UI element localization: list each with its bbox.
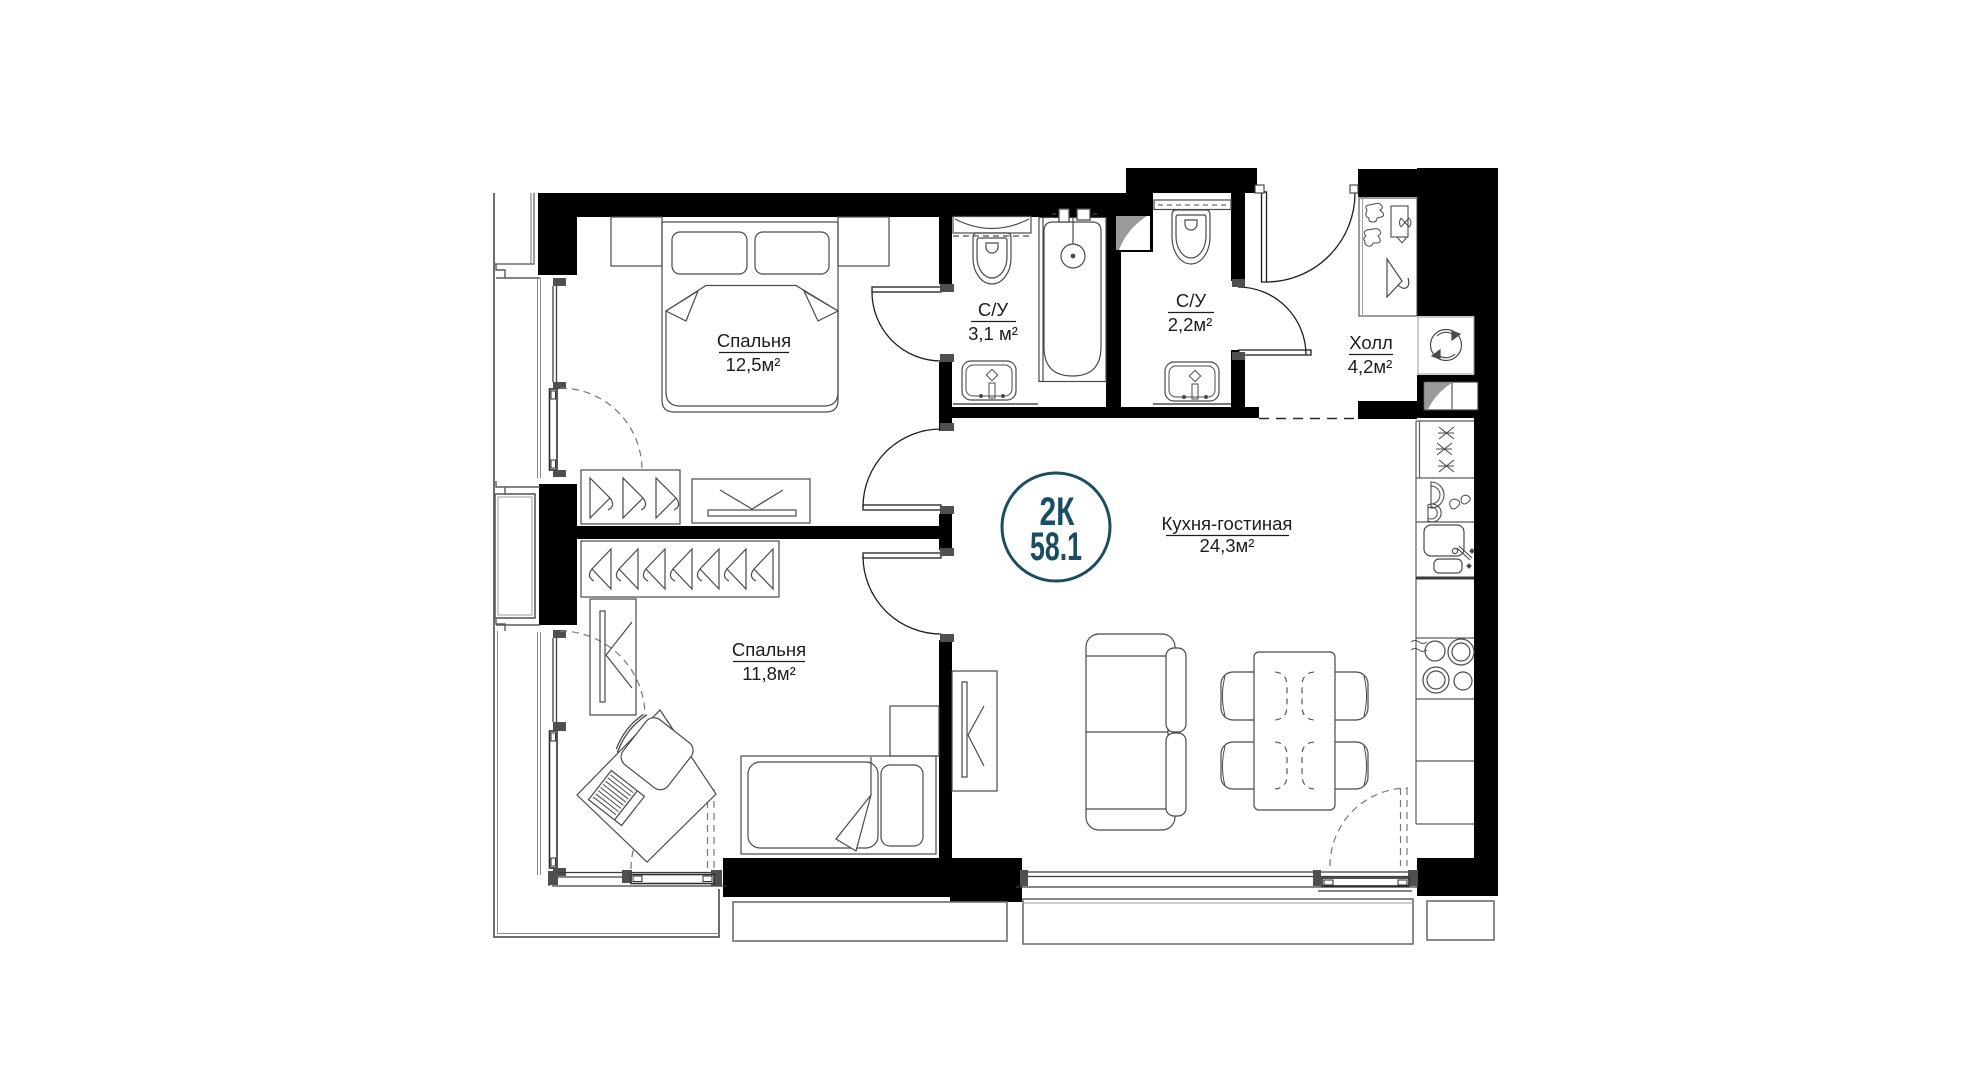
svg-text:24,3м²: 24,3м²	[1200, 535, 1255, 556]
svg-text:Спальня: Спальня	[732, 639, 806, 660]
svg-text:С/У: С/У	[1176, 290, 1207, 311]
svg-text:11,8м²: 11,8м²	[742, 663, 796, 684]
svg-text:12,5м²: 12,5м²	[726, 354, 781, 375]
svg-text:3,1 м²: 3,1 м²	[968, 323, 1018, 344]
svg-text:С/У: С/У	[978, 299, 1009, 320]
svg-text:Холл: Холл	[1349, 332, 1393, 353]
svg-text:2,2м²: 2,2м²	[1168, 314, 1213, 335]
svg-text:Кухня-гостиная: Кухня-гостиная	[1162, 513, 1293, 534]
svg-text:Спальня: Спальня	[717, 330, 791, 351]
svg-text:58.1: 58.1	[1030, 525, 1082, 569]
svg-text:4,2м²: 4,2м²	[1348, 356, 1393, 377]
